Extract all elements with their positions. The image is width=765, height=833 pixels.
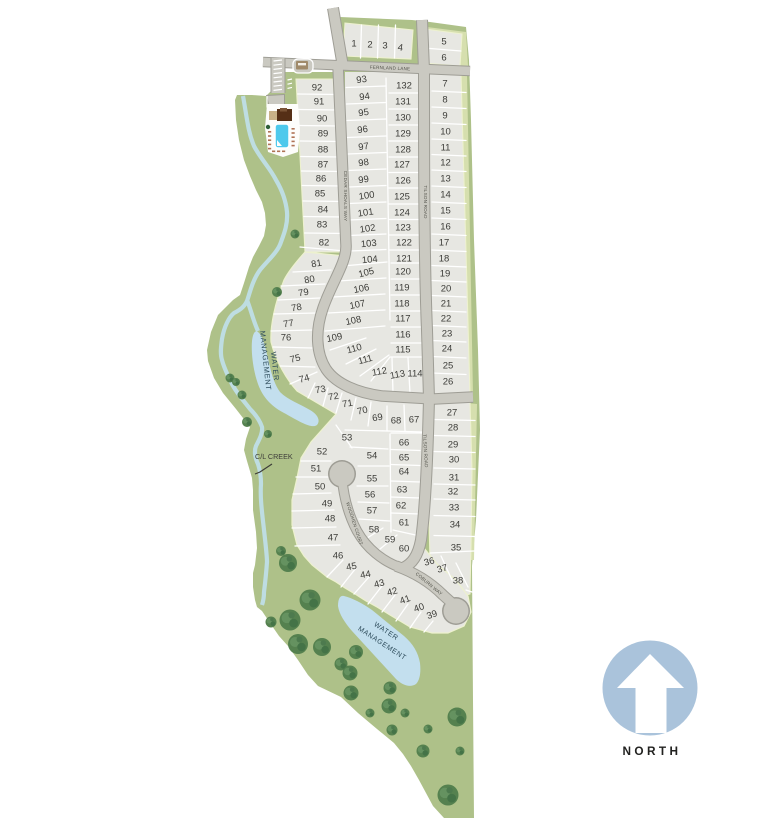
svg-text:119: 119	[394, 283, 409, 294]
svg-text:60: 60	[399, 544, 410, 555]
svg-text:84: 84	[318, 205, 329, 216]
svg-text:1: 1	[351, 39, 356, 50]
svg-text:125: 125	[394, 192, 410, 203]
svg-text:7: 7	[442, 79, 447, 90]
svg-text:91: 91	[314, 97, 325, 108]
svg-text:83: 83	[317, 220, 328, 231]
svg-text:63: 63	[397, 485, 408, 496]
svg-text:78: 78	[290, 302, 302, 315]
svg-text:115: 115	[395, 345, 410, 356]
svg-text:61: 61	[399, 518, 410, 529]
svg-text:59: 59	[385, 535, 396, 546]
svg-text:33: 33	[449, 503, 460, 514]
svg-text:5: 5	[441, 37, 446, 48]
svg-text:120: 120	[395, 267, 411, 278]
svg-text:97: 97	[358, 141, 370, 153]
svg-text:96: 96	[357, 124, 369, 136]
svg-text:68: 68	[391, 416, 402, 427]
svg-text:CEDAR SHOALS WAY: CEDAR SHOALS WAY	[343, 171, 348, 221]
svg-text:29: 29	[448, 440, 459, 451]
svg-text:81: 81	[310, 258, 322, 271]
svg-text:76: 76	[281, 333, 292, 344]
svg-text:NORTH: NORTH	[623, 744, 682, 758]
svg-text:116: 116	[395, 330, 410, 341]
svg-text:12: 12	[440, 158, 451, 169]
svg-text:53: 53	[342, 433, 353, 444]
svg-text:118: 118	[394, 299, 409, 310]
svg-text:18: 18	[439, 254, 450, 265]
svg-text:57: 57	[367, 506, 378, 517]
svg-text:104: 104	[361, 254, 378, 266]
svg-text:87: 87	[318, 160, 329, 171]
svg-text:54: 54	[367, 451, 378, 462]
svg-text:62: 62	[396, 501, 407, 512]
svg-text:48: 48	[325, 514, 336, 525]
svg-text:16: 16	[440, 222, 451, 233]
svg-text:127: 127	[394, 160, 410, 171]
svg-text:TILSON ROAD: TILSON ROAD	[423, 185, 428, 219]
svg-text:129: 129	[395, 129, 411, 140]
svg-text:89: 89	[318, 129, 329, 140]
svg-text:77: 77	[282, 318, 294, 331]
svg-text:86: 86	[316, 174, 327, 185]
svg-text:17: 17	[439, 238, 450, 249]
svg-text:66: 66	[399, 438, 410, 449]
svg-text:C/L CREEK: C/L CREEK	[255, 452, 293, 461]
svg-text:82: 82	[319, 238, 330, 249]
svg-text:69: 69	[371, 412, 383, 425]
svg-text:24: 24	[442, 344, 453, 355]
svg-text:99: 99	[358, 174, 370, 186]
svg-text:92: 92	[312, 83, 323, 94]
svg-text:10: 10	[440, 127, 451, 138]
svg-text:6: 6	[441, 53, 446, 64]
svg-text:93: 93	[356, 74, 368, 86]
svg-text:95: 95	[358, 107, 370, 119]
svg-text:35: 35	[451, 543, 462, 554]
svg-text:102: 102	[359, 222, 376, 235]
svg-text:79: 79	[297, 287, 309, 300]
svg-text:114: 114	[407, 369, 422, 380]
svg-text:70: 70	[356, 405, 369, 418]
svg-text:14: 14	[440, 190, 451, 201]
svg-text:22: 22	[441, 314, 452, 325]
svg-text:34: 34	[450, 520, 461, 531]
svg-text:30: 30	[449, 455, 460, 466]
svg-text:3: 3	[382, 41, 387, 52]
svg-text:27: 27	[447, 408, 458, 419]
svg-text:23: 23	[442, 329, 453, 340]
svg-text:131: 131	[395, 97, 411, 108]
svg-text:85: 85	[315, 189, 326, 200]
svg-text:11: 11	[441, 143, 451, 154]
svg-text:126: 126	[395, 176, 411, 187]
svg-text:31: 31	[449, 473, 460, 484]
svg-text:2: 2	[367, 40, 372, 51]
svg-text:58: 58	[369, 525, 380, 536]
svg-text:52: 52	[317, 447, 328, 458]
svg-text:19: 19	[440, 269, 451, 280]
svg-text:45: 45	[345, 561, 357, 574]
svg-text:9: 9	[442, 111, 447, 122]
svg-text:67: 67	[409, 415, 420, 426]
svg-text:121: 121	[396, 254, 412, 265]
svg-text:71: 71	[341, 398, 353, 411]
svg-text:13: 13	[440, 174, 451, 185]
svg-text:124: 124	[394, 208, 410, 219]
svg-text:49: 49	[322, 499, 333, 510]
svg-text:98: 98	[358, 157, 370, 169]
svg-text:55: 55	[367, 474, 378, 485]
svg-text:64: 64	[399, 467, 410, 478]
svg-text:101: 101	[357, 206, 374, 219]
svg-text:80: 80	[303, 274, 315, 287]
svg-text:128: 128	[395, 145, 411, 156]
svg-text:50: 50	[315, 482, 326, 493]
svg-text:47: 47	[328, 533, 339, 544]
svg-text:46: 46	[333, 551, 344, 562]
svg-text:28: 28	[448, 423, 459, 434]
svg-text:38: 38	[453, 576, 464, 587]
svg-text:15: 15	[440, 206, 451, 217]
svg-text:90: 90	[317, 114, 328, 125]
svg-text:132: 132	[396, 81, 412, 92]
svg-text:8: 8	[442, 95, 447, 106]
svg-text:26: 26	[443, 377, 454, 388]
svg-text:65: 65	[399, 453, 410, 464]
svg-text:94: 94	[359, 91, 371, 103]
svg-text:117: 117	[395, 314, 410, 325]
svg-text:32: 32	[448, 487, 459, 498]
svg-text:88: 88	[318, 145, 329, 156]
svg-text:100: 100	[358, 189, 375, 202]
svg-text:122: 122	[396, 238, 412, 249]
svg-text:56: 56	[365, 490, 376, 501]
svg-text:21: 21	[441, 299, 452, 310]
svg-text:123: 123	[395, 223, 411, 234]
svg-text:25: 25	[443, 361, 454, 372]
svg-text:103: 103	[360, 238, 377, 250]
svg-text:130: 130	[395, 113, 411, 124]
svg-text:44: 44	[359, 569, 371, 582]
svg-text:20: 20	[441, 284, 452, 295]
svg-text:73: 73	[314, 384, 326, 397]
svg-text:51: 51	[311, 464, 322, 475]
svg-text:72: 72	[327, 391, 339, 404]
